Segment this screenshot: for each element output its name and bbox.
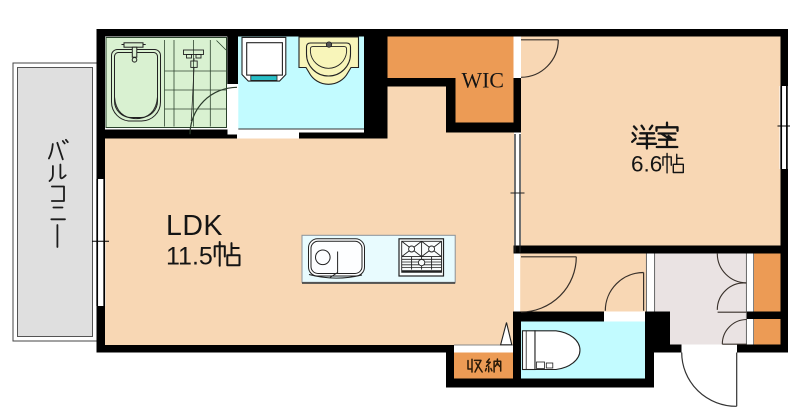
- svg-text:6.6: 6.6: [631, 152, 662, 177]
- svg-text:WIC: WIC: [462, 68, 504, 92]
- svg-text:LDK: LDK: [166, 210, 223, 242]
- svg-text:11.5: 11.5: [166, 243, 213, 271]
